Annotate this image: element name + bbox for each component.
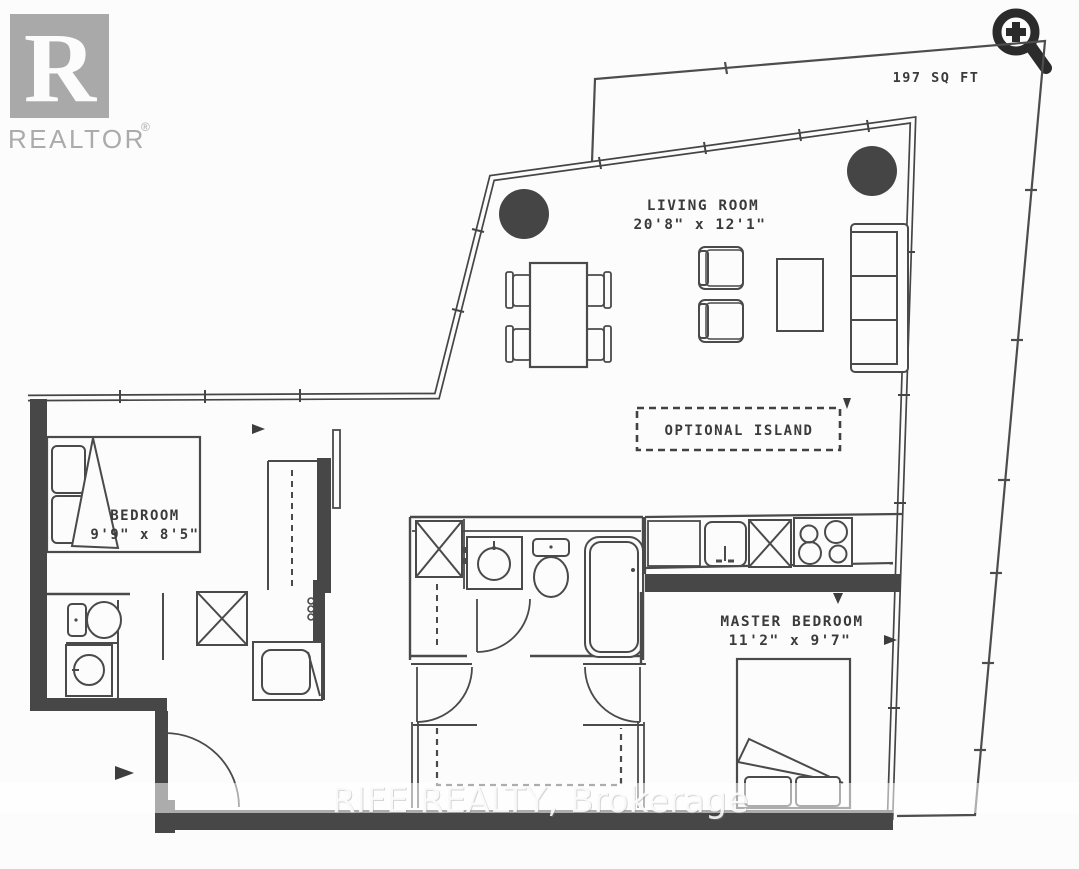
toilet	[68, 602, 121, 638]
dining-table	[530, 263, 587, 367]
dining-chair	[506, 326, 531, 362]
balcony-tick	[725, 62, 727, 74]
kitchen-x-appliance	[749, 520, 791, 567]
column	[499, 189, 549, 239]
bedroom-group	[47, 430, 340, 590]
shower	[253, 642, 322, 700]
wall-stub	[333, 430, 340, 508]
dining-chair	[586, 326, 611, 362]
wall-kitchen-master	[645, 574, 900, 592]
balcony-area-label: 197 SQ FT	[893, 70, 980, 86]
living-room-label: LIVING ROOM	[647, 198, 760, 214]
registered-trademark-icon: ®	[141, 120, 150, 134]
optional-island-label: OPTIONAL ISLAND	[665, 423, 814, 439]
coffee-table	[777, 259, 823, 331]
master-bedroom-dims: 11'2" x 9'7"	[729, 633, 852, 649]
dining-chair	[506, 272, 531, 308]
cooktop	[794, 518, 852, 566]
floor-plan-image: R REALTOR ®	[0, 0, 1079, 869]
sofa	[851, 224, 908, 372]
kitchen-group	[645, 514, 902, 574]
master-bedroom-label: MASTER BEDROOM	[720, 614, 863, 630]
armchair	[699, 300, 743, 342]
wall-bedroom-closet	[317, 458, 331, 593]
master-door-arc	[585, 667, 640, 722]
realtor-logo-text: REALTOR	[8, 124, 146, 154]
laundry-bath-group	[47, 592, 322, 700]
bath-x-cabinet	[416, 521, 466, 577]
living-furniture	[699, 224, 908, 372]
dining-chair	[586, 272, 611, 308]
bath-sink	[467, 537, 522, 589]
bedroom-dims: 9'9" x 8'5"	[90, 527, 199, 543]
foyer-closet-dashed	[437, 728, 621, 785]
dining-set	[506, 263, 611, 367]
kitchen-back-edge	[645, 514, 902, 517]
master-entry-arrow-icon	[833, 593, 843, 604]
island-arrow-icon	[843, 398, 851, 409]
armchair	[699, 247, 743, 289]
hinge-dots	[308, 598, 314, 620]
kitchen-cabinet	[648, 521, 700, 566]
realtor-logo-letter: R	[24, 12, 98, 123]
column	[847, 146, 897, 196]
optional-island: OPTIONAL ISLAND	[637, 398, 851, 450]
living-room-dims: 20'8" x 12'1"	[634, 217, 767, 233]
bedroom-arrow-icon	[252, 424, 265, 434]
floor-plan-svg: R REALTOR ®	[0, 0, 1079, 869]
x-closet	[197, 592, 247, 645]
hall-door-arc	[417, 667, 472, 722]
kitchen-sink	[705, 522, 746, 566]
realtor-logo: R REALTOR ®	[8, 12, 150, 154]
washer	[66, 645, 112, 696]
bedroom-label: BEDROOM	[110, 508, 180, 524]
wall-laundry-bottom	[30, 698, 167, 711]
entry-arrow-icon	[115, 766, 134, 780]
bath-toilet	[533, 539, 569, 597]
wall-left	[30, 399, 47, 700]
bathroom-group	[410, 517, 643, 660]
bed-pillow	[52, 446, 85, 493]
watermark-text: RIFE REALTY, Brokerage	[331, 781, 748, 821]
bath-door-arc	[477, 599, 530, 652]
bathtub	[585, 537, 643, 657]
